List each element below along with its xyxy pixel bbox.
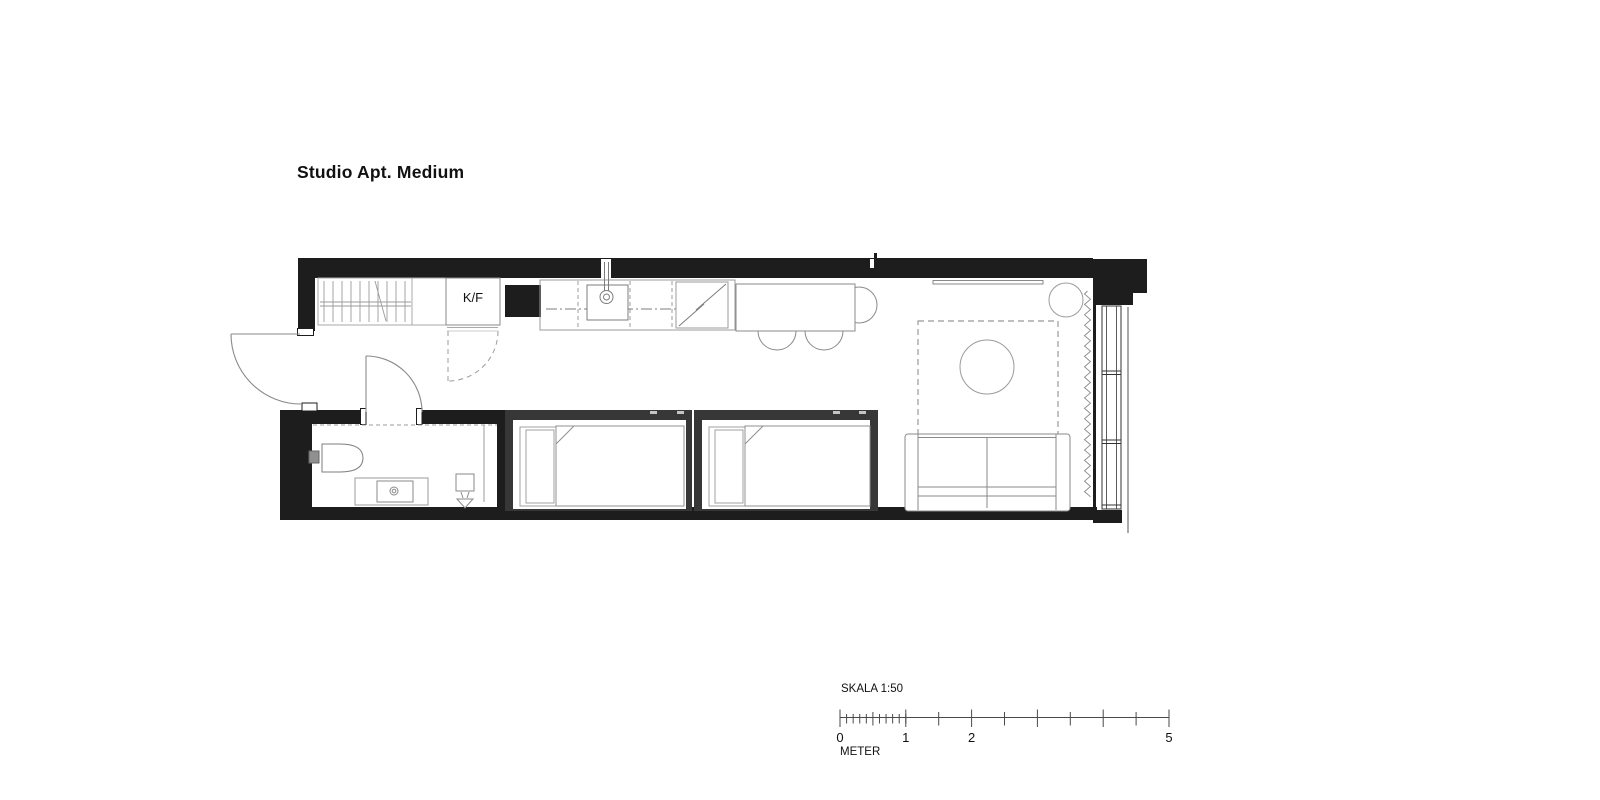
service-shaft	[505, 285, 541, 317]
pillow-icon	[715, 430, 743, 503]
blanket	[745, 426, 870, 506]
wall-shelf	[933, 281, 1043, 285]
scale-tick-label: 0	[836, 730, 843, 745]
vanity-sink	[377, 481, 413, 502]
door-jamb	[361, 409, 367, 425]
drain-icon	[604, 294, 610, 300]
floor-plan-page: Studio Apt. Medium	[0, 0, 1600, 800]
coffee-table	[960, 340, 1014, 394]
sofa	[905, 434, 1070, 511]
blanket	[556, 426, 684, 506]
dining-table	[736, 284, 855, 331]
shower-head	[456, 474, 474, 491]
floor-plan-drawing	[0, 0, 1600, 800]
kitchen-appliance	[676, 282, 728, 328]
bed-1	[505, 410, 692, 511]
hanger-rail-icon	[320, 281, 411, 322]
fridge-freezer-label: K/F	[446, 290, 500, 305]
plant-icon	[1049, 283, 1083, 317]
door-jamb	[302, 403, 317, 411]
scale-tick-label: 5	[1165, 730, 1172, 745]
scale-unit-label: METER	[840, 746, 880, 758]
bed-2	[694, 410, 878, 511]
scale-title: SKALA 1:50	[841, 683, 903, 695]
pipe-notch	[601, 259, 611, 278]
wardrobe-door-swing	[448, 331, 498, 381]
scale-ruler	[840, 710, 1169, 728]
entry-door	[231, 334, 301, 404]
pipe-notch	[870, 259, 874, 268]
bathroom-door	[366, 356, 422, 412]
scale-tick-label: 2	[968, 730, 975, 745]
pillow-icon	[526, 430, 554, 503]
scale-tick-label: 1	[902, 730, 909, 745]
door-jamb	[417, 409, 423, 425]
window	[1102, 306, 1128, 533]
curtain-icon	[1085, 291, 1091, 497]
floor-drain-icon	[457, 499, 473, 508]
wardrobe	[318, 278, 446, 325]
bathroom	[309, 425, 497, 508]
toilet-cistern	[309, 451, 319, 463]
toilet-icon	[322, 444, 363, 472]
